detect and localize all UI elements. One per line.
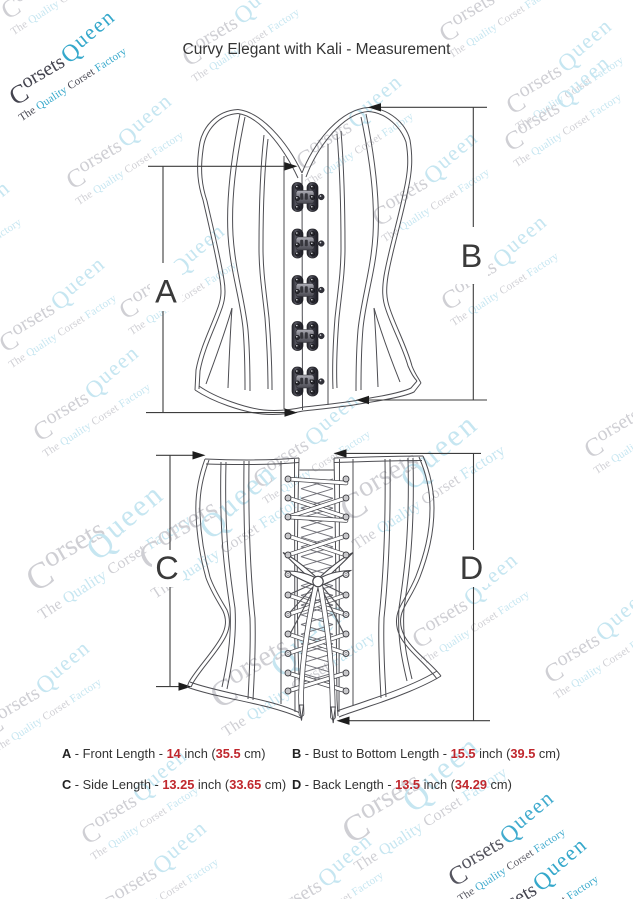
svg-text:B: B: [461, 238, 483, 274]
svg-text:C: C: [155, 550, 178, 586]
svg-text:D: D: [460, 550, 483, 586]
svg-text:A: A: [155, 274, 177, 310]
